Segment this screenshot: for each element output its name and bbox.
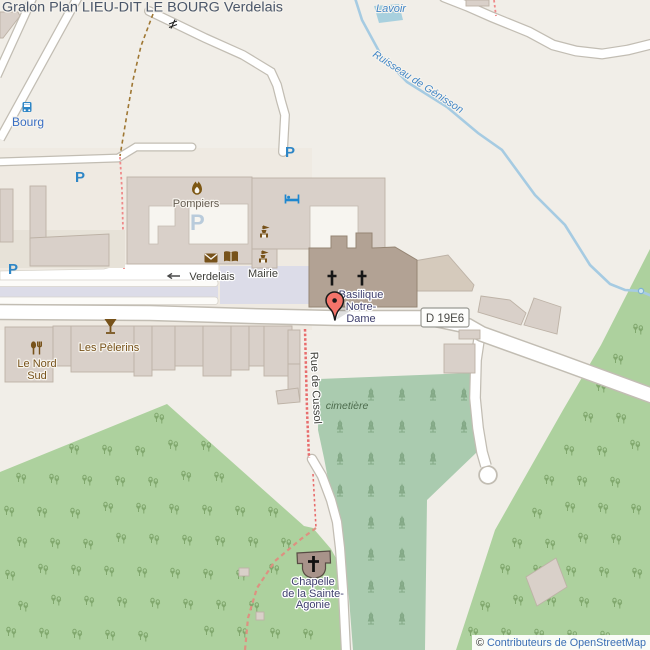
svg-text:D 19E6: D 19E6: [426, 313, 464, 325]
svg-text:Basilique: Basilique: [339, 289, 384, 301]
svg-text:Dame: Dame: [346, 313, 375, 325]
svg-text:Bourg: Bourg: [12, 115, 44, 129]
svg-text:© Contributeurs de OpenStreetM: © Contributeurs de OpenStreetMap: [476, 637, 646, 649]
svg-text:Verdelais: Verdelais: [189, 271, 235, 283]
svg-text:P: P: [190, 210, 205, 235]
svg-text:cimetière: cimetière: [326, 400, 369, 412]
svg-text:Pompiers: Pompiers: [173, 198, 220, 210]
svg-text:Chapelle: Chapelle: [291, 576, 334, 588]
svg-text:Notre-: Notre-: [346, 301, 377, 313]
svg-text:Mairie: Mairie: [248, 268, 278, 280]
svg-text:Lavoir: Lavoir: [376, 3, 407, 15]
svg-text:P: P: [285, 144, 295, 161]
svg-text:Le Nord: Le Nord: [17, 358, 56, 370]
svg-text:P: P: [75, 169, 85, 186]
svg-text:Les Pèlerins: Les Pèlerins: [79, 342, 140, 354]
svg-text:Agonie: Agonie: [296, 599, 330, 611]
svg-text:Sud: Sud: [27, 370, 47, 382]
svg-text:Gralon Plan LIEU-DIT LE BOURG: Gralon Plan LIEU-DIT LE BOURG Verdelais: [2, 0, 283, 15]
svg-text:P: P: [8, 261, 18, 278]
